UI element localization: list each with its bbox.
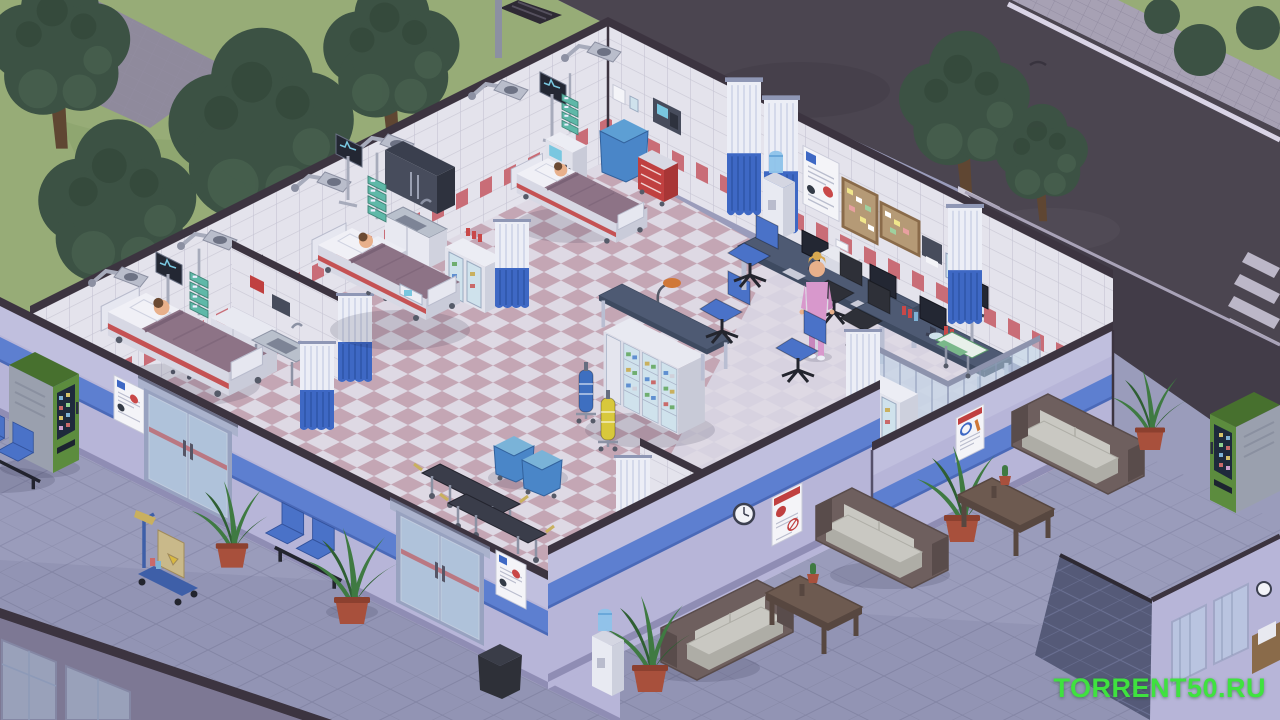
privacy-curtain[interactable] — [946, 204, 984, 324]
wall-clock — [734, 504, 754, 524]
wall-clock-small — [1257, 582, 1271, 596]
vending-machine[interactable] — [1210, 392, 1280, 513]
watermark: TORRENT50.RU — [1053, 673, 1266, 704]
flag-pole — [495, 0, 502, 58]
privacy-curtain[interactable] — [298, 341, 336, 430]
trash-bin[interactable] — [478, 644, 522, 699]
privacy-curtain[interactable] — [493, 219, 531, 308]
game-viewport: TORRENT50.RU — [0, 0, 1280, 720]
hospital-scene — [0, 0, 1280, 720]
